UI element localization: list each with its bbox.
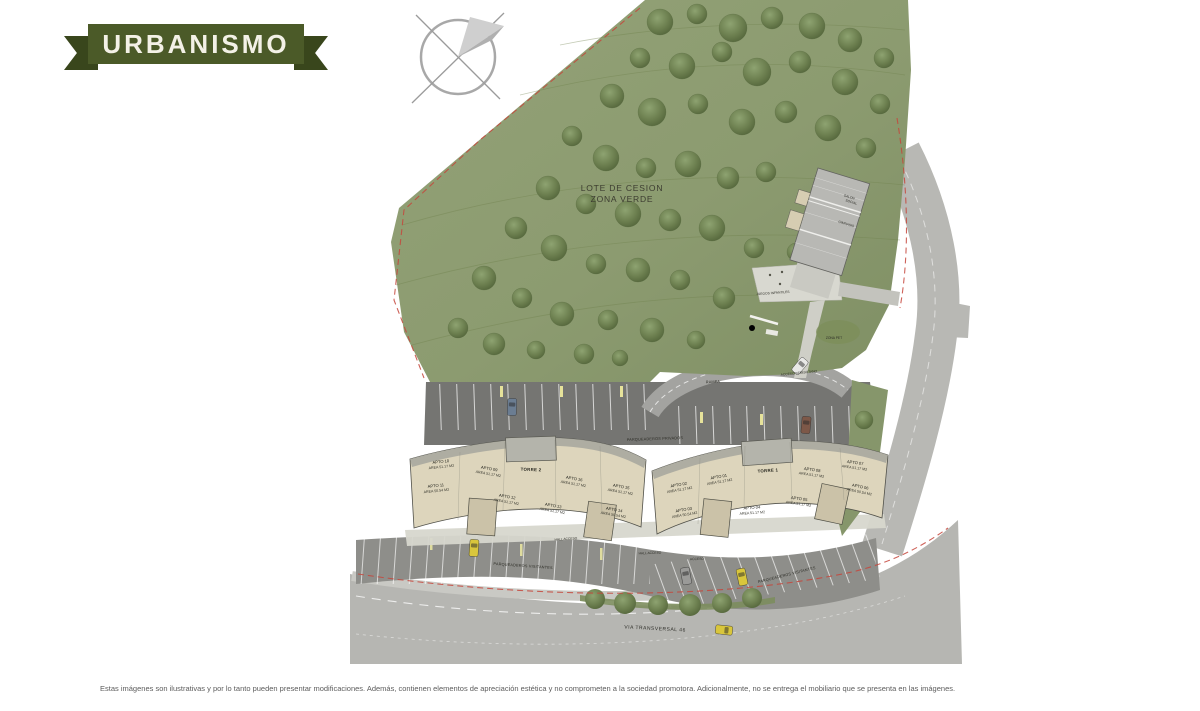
zona-pet-label: ZONA PET: [826, 336, 842, 340]
rampa-label: RAMPA: [706, 380, 721, 385]
hall-acceso-center-label: HALL ACCESO: [639, 551, 662, 556]
t1-apt04-area: AREA 51.17 M2: [739, 510, 765, 516]
green-zone-label-line1: LOTE DE CESION: [581, 183, 664, 193]
green-zone-label-line2: ZONA VERDE: [591, 194, 654, 204]
site-plan-rendering: LOTE DE CESION ZONA VERDE SALON SOCIAL G…: [0, 0, 1200, 706]
pet-zone: [816, 320, 860, 344]
banner-ribbon-center: URBANISMO: [88, 24, 304, 64]
torre-2-label: TORRE 2: [521, 467, 542, 473]
compass-icon: [412, 13, 504, 103]
disclaimer-text: Estas imágenes son ilustrativas y por lo…: [100, 684, 1160, 693]
acceso-label: ACCESO: [690, 557, 704, 561]
banner-title: URBANISMO: [102, 29, 289, 60]
urbanismo-banner: URBANISMO: [68, 24, 324, 70]
site-plan-page: LOTE DE CESION ZONA VERDE SALON SOCIAL G…: [0, 0, 1200, 706]
